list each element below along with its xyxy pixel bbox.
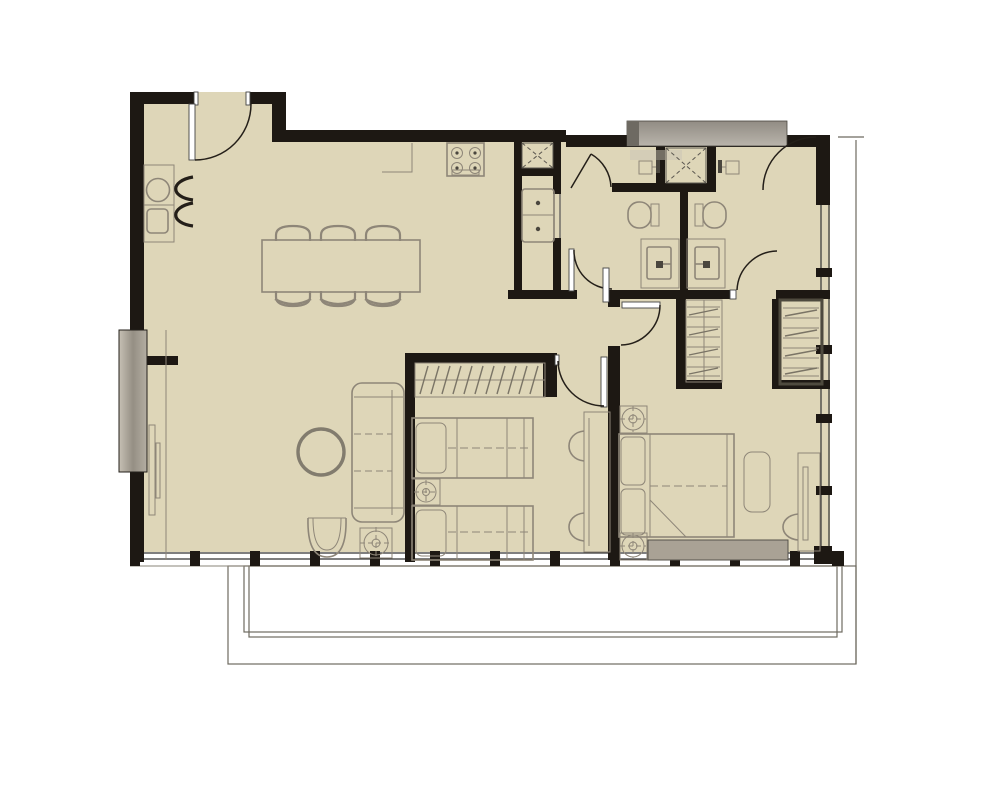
shower-sprayer-icon [718, 160, 722, 173]
wd-knob [536, 227, 540, 231]
utility-wall-right-b [553, 238, 561, 298]
mullion [250, 551, 260, 566]
entry-door-panel [189, 104, 195, 160]
ceiling-bulkhead [627, 121, 787, 146]
floor-plan-page [0, 0, 1000, 800]
exterior-wall-top-left [130, 92, 196, 104]
bath-bottom-wall-mid [620, 290, 736, 299]
utility-bottom-wall [508, 290, 570, 299]
bulkhead-end-cap [627, 121, 639, 146]
bathroom-left-door-panel [569, 249, 574, 291]
bed-foot-bench [648, 540, 788, 560]
faucet-icon [703, 261, 710, 268]
faucet-icon [656, 261, 663, 268]
closet1-bottom-wall [676, 380, 722, 389]
right-wall-upper [816, 135, 830, 205]
corner-block [814, 546, 832, 564]
wd-knob [536, 201, 540, 205]
balcony-inner-rail-1 [244, 566, 842, 632]
burner-center [473, 166, 476, 169]
bath-shaft-wall-right [707, 147, 716, 189]
exterior-chimney-element [119, 330, 147, 472]
floor-plan-drawing [0, 0, 1000, 800]
shower-sprayer-icon [656, 160, 660, 173]
utility-wall-left [514, 142, 522, 298]
bedroom2-top-wall [405, 353, 557, 363]
mullion [816, 486, 832, 495]
door-jamb [194, 92, 198, 105]
bedroom2-left-wall [405, 353, 415, 562]
burner-center [455, 166, 458, 169]
balcony-outer-rail [228, 566, 856, 664]
mullion-corner [832, 551, 844, 566]
mullion [430, 551, 440, 566]
mullion [550, 551, 560, 566]
master-door-panel [622, 302, 660, 308]
utility-shaft-divider [514, 168, 561, 176]
exterior-wall-left [130, 92, 144, 562]
door-jamb [730, 290, 736, 299]
mullion [816, 414, 832, 423]
door-jamb [246, 92, 250, 105]
shower-stall-wall [612, 183, 716, 192]
bath-bottom-wall-right [776, 290, 830, 299]
mullion [816, 345, 832, 354]
mullion [310, 551, 320, 566]
tv-wall-stub [144, 356, 178, 365]
hall-door-panel [603, 268, 609, 302]
mullion [490, 551, 500, 566]
balcony-inner-rail-2 [249, 566, 837, 637]
burner-center [455, 151, 458, 154]
mullion [190, 551, 200, 566]
entry-opening-floor [194, 92, 252, 108]
bedroom2-door-panel [601, 357, 607, 407]
mullion [790, 551, 800, 566]
hall-wall-block [608, 290, 620, 307]
top-wall-middle [272, 130, 566, 142]
burner-center [473, 151, 476, 154]
mullion [816, 268, 832, 277]
closet1-wall [676, 299, 686, 388]
